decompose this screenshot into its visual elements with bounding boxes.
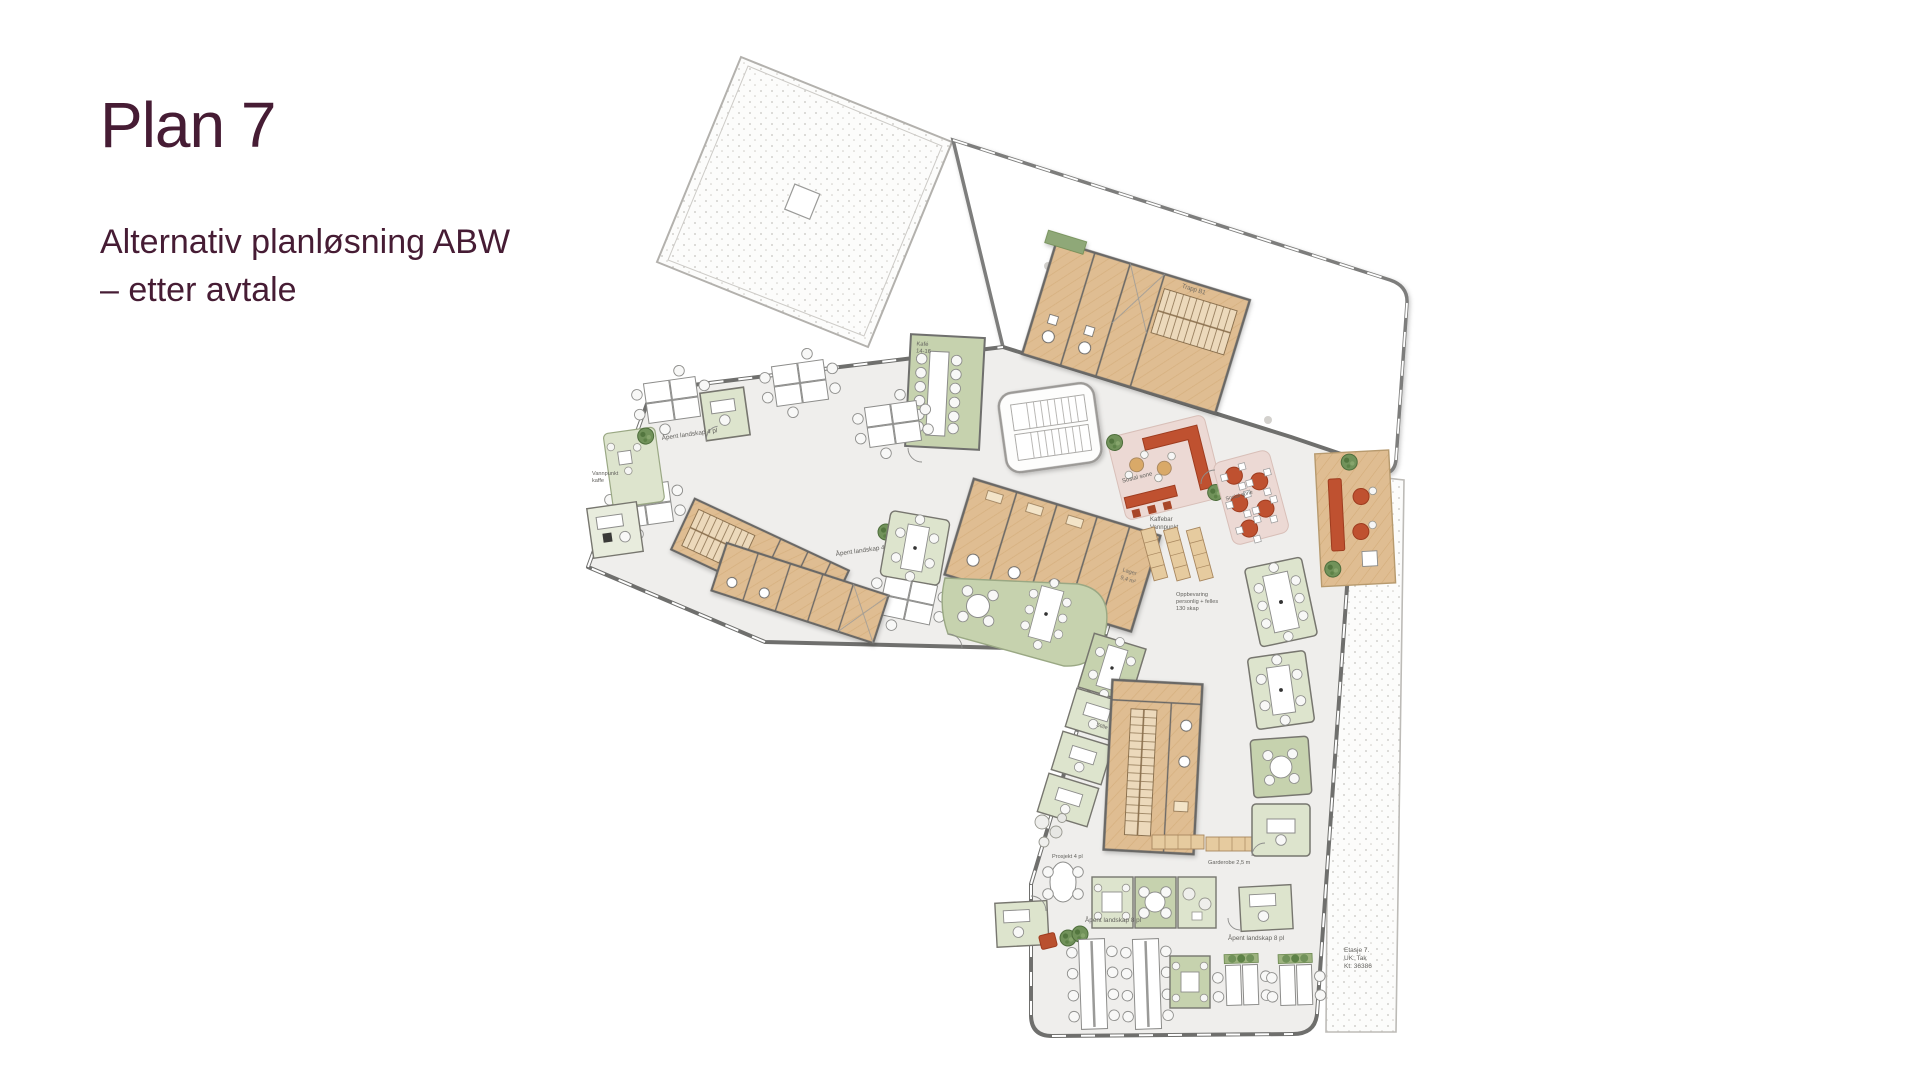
subtitle-line-1: Alternativ planløsning ABW — [100, 218, 510, 266]
title-block: Plan 7 Alternativ planløsning ABW – ette… — [100, 88, 510, 315]
slide: Plan 7 Alternativ planløsning ABW – ette… — [0, 0, 1920, 1080]
right-meeting-rooms — [1244, 557, 1317, 856]
junction-meeting-room-2 — [880, 510, 951, 587]
coffee-bar-label: Kaffebar — [1150, 517, 1173, 523]
water-coffee-zone — [603, 427, 665, 509]
subtitle-line-2: – etter avtale — [100, 266, 510, 314]
column — [1264, 416, 1272, 424]
open-landscape-8-label-a: Åpent landskap 8 pl — [1085, 915, 1141, 924]
cafe-seats-label: 14-16 — [916, 348, 931, 355]
lockers-label-2: personlig + felles — [1176, 599, 1218, 605]
page-title: Plan 7 — [100, 88, 510, 162]
lockers-label-3: 130 skap — [1176, 606, 1199, 612]
wardrobe-label: Garderobe 2,5 m — [1208, 860, 1251, 866]
terrace-note-line1: Etasje 7. — [1344, 947, 1369, 954]
water-coffee-label-2: kaffe — [592, 478, 604, 484]
terrace-note-line2: UK: Tak — [1344, 955, 1367, 962]
central-stair-core — [997, 381, 1103, 474]
project-label: Prosjekt 4 pl — [1052, 854, 1083, 860]
water-coffee-label-1: Vannpunkt — [592, 471, 619, 477]
quiet-booth — [1170, 956, 1210, 1008]
roof-terrace-top-left — [657, 57, 952, 347]
open-landscape-8-label-b: Åpent landskap 8 pl — [1228, 933, 1284, 942]
printer — [602, 533, 612, 543]
copy-room — [587, 502, 643, 558]
page-subtitle: Alternativ planløsning ABW – etter avtal… — [100, 218, 510, 315]
terrace-note-line3: Kt: 36386 — [1344, 963, 1372, 970]
cafe-label: Kafé — [916, 341, 928, 348]
cafe-long-table — [926, 351, 949, 436]
bottom-stair-core — [1104, 680, 1203, 854]
outdoor-deck — [1315, 450, 1396, 587]
lockers-label-1: Oppbevaring — [1176, 592, 1208, 598]
